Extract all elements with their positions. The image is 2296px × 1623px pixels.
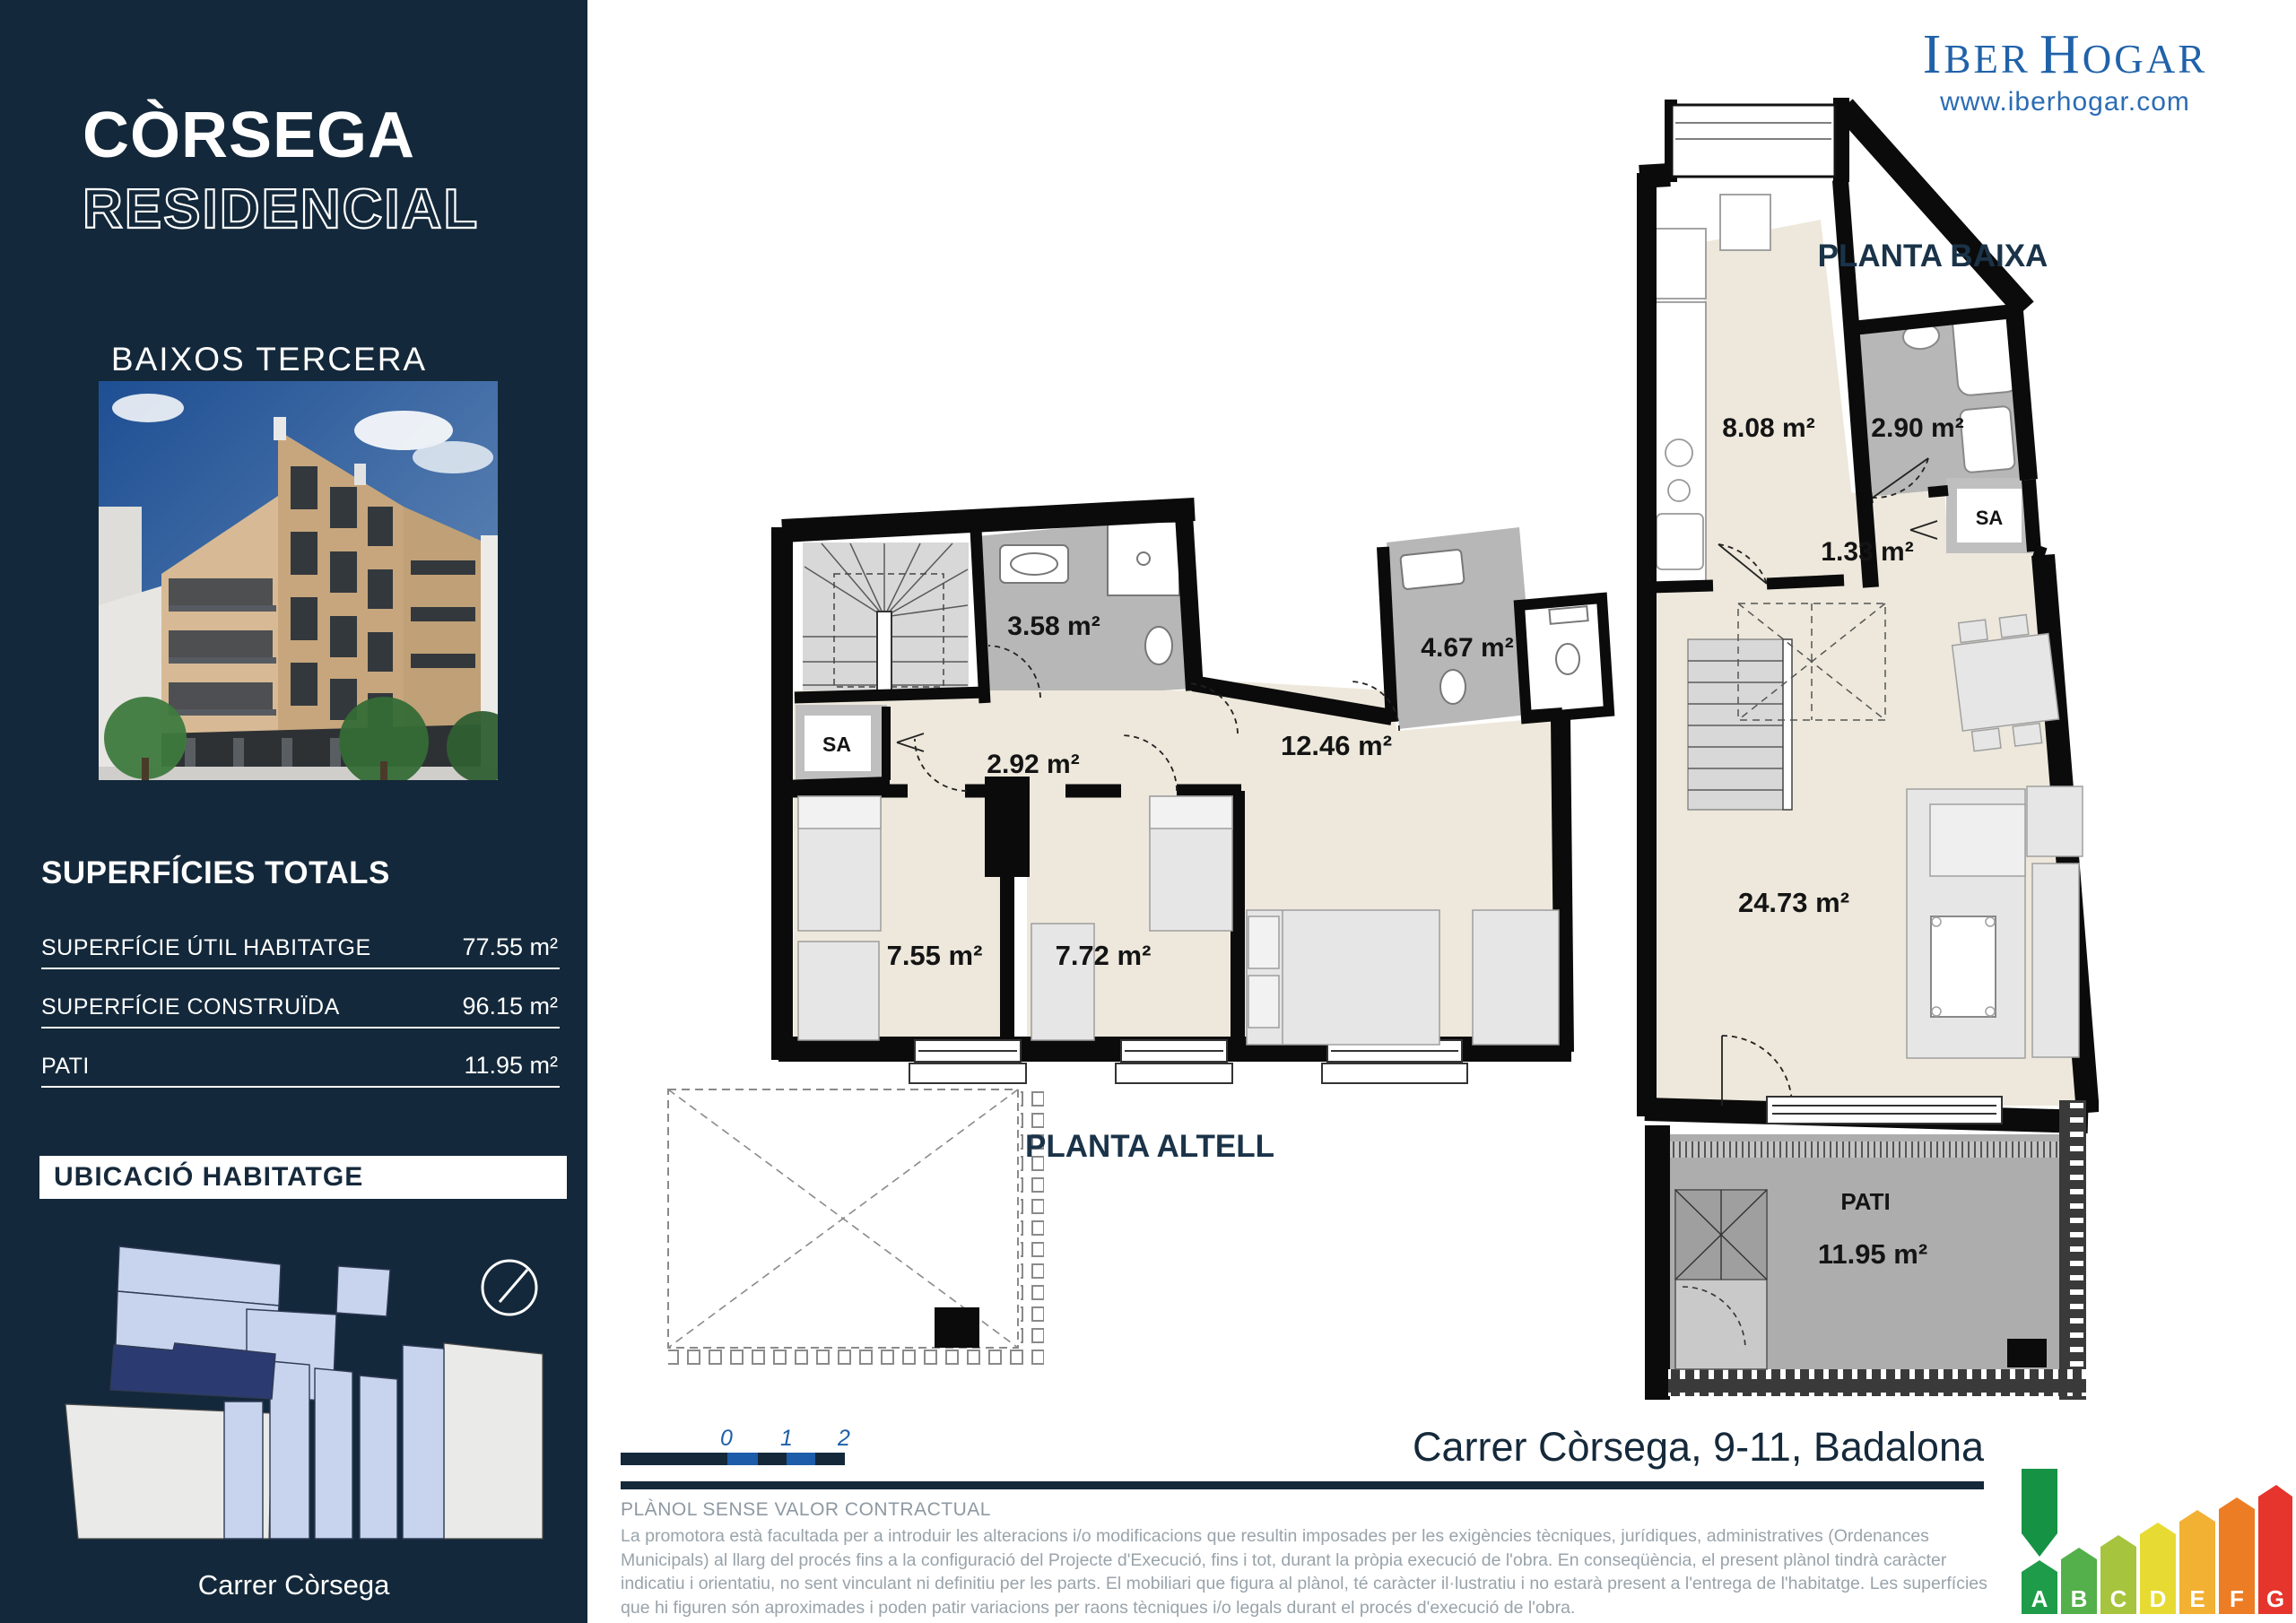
room-label: 8.08 m² [1722,413,1814,443]
room-label: 2.90 m² [1871,413,1963,443]
room-label: SA [822,733,851,756]
site-block [270,1361,309,1539]
superficies-label: SUPERFÍCIE CONSTRUÏDA [41,994,340,1020]
floorplan-planta-baixa: 8.08 m² 2.90 m² 1.33 m² SA 24.73 m² PATI… [1632,94,2099,1412]
scale-tick-label: 0 [720,1426,733,1451]
project-title: CÒRSEGA [83,99,415,172]
room-label: 11.95 m² [1818,1238,1927,1270]
site-plan [40,1209,565,1545]
sidebar: CÒRSEGA RESIDENCIAL BAIXOS TERCERA [0,0,587,1623]
room-label: PATI [1840,1188,1890,1215]
property-address: Carrer Còrsega, 9-11, Badalona [1076,1424,1984,1471]
scale-segments [621,1453,845,1465]
energy-letter: E [2189,1585,2205,1612]
energy-scale: A B C D E F G [2022,1485,2292,1614]
ubicacio-heading-label: UBICACIÓ HABITATGE [39,1156,567,1199]
plan-title-altell: PLANTA ALTELL [1025,1129,1274,1164]
room-label: SA [1976,507,2004,529]
parcel-right [444,1343,543,1539]
brochure-page: { "brand": {"navy":"#13283A","logo_blue"… [0,0,2296,1623]
room-label: 3.58 m² [1007,612,1100,641]
room-label: 24.73 m² [1738,887,1849,918]
energy-letter: D [2150,1585,2167,1612]
ubicacio-header: UBICACIÓ HABITATGE [39,1156,567,1199]
energy-rating-marker-arrow [2022,1469,2057,1557]
street-name-label: Carrer Còrsega [0,1569,587,1601]
room-label: 2.92 m² [987,750,1079,779]
superficies-label: SUPERFÍCIE ÚTIL HABITATGE [41,935,371,961]
energy-rating-label: A B C D E F G [2014,1467,2292,1621]
site-block [224,1402,263,1539]
superficies-value: 77.55 m² [462,933,558,961]
superficies-heading: SUPERFÍCIES TOTALS [41,855,390,891]
scale-tick-label: 1 [780,1426,793,1451]
divider-line [621,1481,1984,1489]
plan-title-baixa: PLANTA BAIXA [1818,239,2048,273]
energy-letter: G [2266,1585,2284,1612]
baixa-living-window [1767,1097,2002,1124]
scale-bar: 0 1 2 [619,1426,996,1480]
room-label: 7.55 m² [887,940,983,971]
unit-name: BAIXOS TERCERA [0,341,538,378]
site-block [360,1376,397,1539]
cloud [112,394,184,422]
baixa-top-window-band [1672,105,1835,177]
energy-letter: A [2031,1585,2048,1612]
site-block [336,1266,390,1316]
superficies-value: 11.95 m² [464,1052,558,1080]
superficies-row: SUPERFÍCIE ÚTIL HABITATGE 77.55 m² [41,922,560,969]
scale-tick-label: 2 [837,1426,850,1451]
room-label: 1.33 m² [1821,537,1913,567]
superficies-label: PATI [41,1054,90,1080]
superficies-row: SUPERFÍCIE CONSTRUÏDA 96.15 m² [41,981,560,1028]
energy-letter: B [2071,1585,2088,1612]
disclaimer-title: PLÀNOL SENSE VALOR CONTRACTUAL [621,1499,2013,1521]
superficies-row: PATI 11.95 m² [41,1040,560,1088]
superficies-value: 96.15 m² [462,993,558,1020]
logo-wordmark: IBERHOGAR [1865,23,2265,87]
floorplan-planta-altell: 3.58 m² 2.92 m² SA 7.55 m² 7.72 m² 12.46… [619,421,1641,1372]
site-block [403,1345,444,1539]
cloud [413,441,493,473]
compass-icon [483,1261,536,1315]
site-block [315,1368,352,1539]
room-label: 7.72 m² [1056,940,1152,971]
disclaimer-body: La promotora està facultada per a introd… [621,1524,2013,1619]
site-highlighted-unit [110,1343,275,1399]
room-label: 12.46 m² [1281,730,1392,761]
room-label: 4.67 m² [1421,633,1513,663]
altell-windows [909,1040,1467,1083]
legal-disclaimer: PLÀNOL SENSE VALOR CONTRACTUAL La promot… [621,1499,2013,1619]
altell-void-area [668,1088,1044,1371]
energy-letter: C [2110,1585,2127,1612]
scale-labels: 0 1 2 [720,1426,850,1451]
building-photo [99,381,498,780]
project-subtitle-outline: RESIDENCIAL [83,178,479,241]
energy-letter: F [2230,1585,2244,1612]
